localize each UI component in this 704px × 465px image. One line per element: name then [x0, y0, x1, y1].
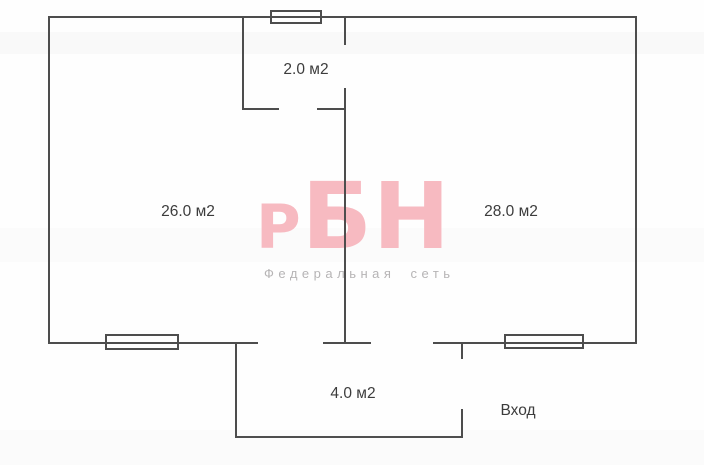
closet-wall-bottom-right [317, 108, 346, 110]
room-area-label-vestibule: 4.0 м2 [330, 385, 375, 403]
window-top [270, 10, 322, 24]
closet-wall-left [242, 16, 244, 110]
vestibule-wall-bottom [235, 436, 463, 438]
wall-bottom-center-segment [323, 342, 371, 344]
closet-wall-bottom-left [242, 108, 279, 110]
vestibule-wall-left [235, 342, 237, 438]
watermark-logo-letter-r: Р [256, 192, 302, 263]
wall-top [48, 16, 637, 18]
room-area-label-room-right: 28.0 м2 [484, 203, 538, 221]
vestibule-wall-right-lower [461, 409, 463, 438]
floorplan: РБН Федеральная сеть 2.0 м2 26.0 м2 28.0… [0, 0, 704, 465]
room-area-label-room-left: 26.0 м2 [161, 203, 215, 221]
window-bottom-right [504, 334, 584, 349]
room-area-label-closet: 2.0 м2 [283, 61, 328, 79]
scan-streak [0, 32, 704, 54]
wall-left [48, 16, 50, 344]
entrance-label: Вход [500, 402, 535, 420]
watermark-logo: РБН [256, 163, 451, 270]
partition-wall [344, 88, 346, 344]
vestibule-wall-right-upper [461, 342, 463, 359]
watermark-logo-letters-bn: БН [302, 163, 451, 270]
watermark-tagline: Федеральная сеть [264, 266, 455, 281]
window-bottom-left [105, 334, 179, 350]
closet-wall-right-stub [344, 16, 346, 45]
wall-right [635, 16, 637, 344]
